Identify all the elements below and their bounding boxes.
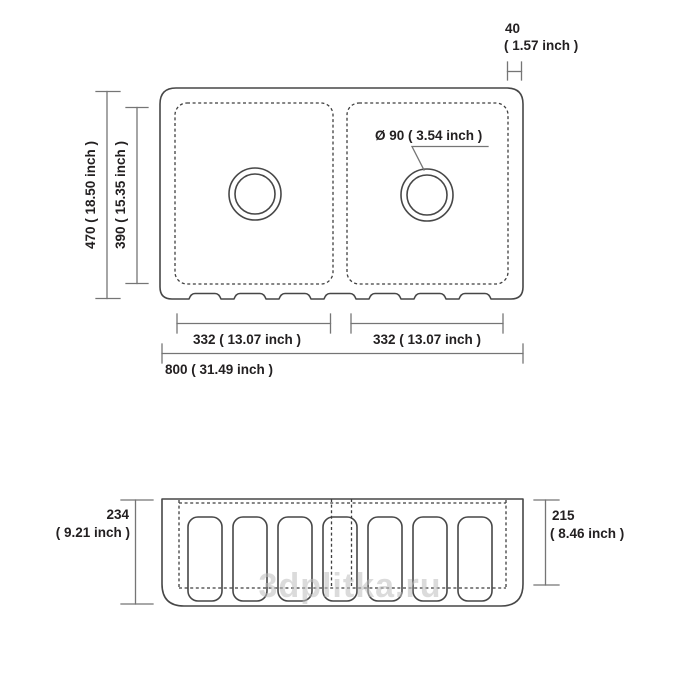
dim-215-mm-label: 215 xyxy=(552,508,575,523)
right-drain-inner-circle xyxy=(407,175,447,215)
dim-rim-gap-inch-label: ( 1.57 inch ) xyxy=(504,38,578,53)
dim-234-inch-label: ( 9.21 inch ) xyxy=(56,525,130,540)
left-bowl-dashed xyxy=(175,103,333,284)
left-drain-inner-circle xyxy=(235,174,275,214)
dim-rim-gap-mm-label: 40 xyxy=(505,21,520,36)
top-view-outline xyxy=(160,88,523,299)
dim-390-label: 390 ( 15.35 inch ) xyxy=(113,141,128,249)
dimension-labels-group: 40 ( 1.57 inch ) 470 ( 18.50 inch ) 390 … xyxy=(56,21,625,541)
drain-leader-line xyxy=(412,147,488,171)
sink-dimension-diagram: 3dplitka.ru 40 ( 1.57 inch ) 470 ( 18.50… xyxy=(0,0,700,700)
dim-234-mm-label: 234 xyxy=(106,507,129,522)
dim-470-label: 470 ( 18.50 inch ) xyxy=(83,141,98,249)
watermark-text: 3dplitka.ru xyxy=(259,567,442,605)
diagram-svg: 3dplitka.ru 40 ( 1.57 inch ) 470 ( 18.50… xyxy=(0,0,700,700)
outline-group xyxy=(160,88,523,606)
dimension-group xyxy=(96,62,559,604)
dim-215-inch-label: ( 8.46 inch ) xyxy=(550,526,624,541)
right-drain-outer-circle xyxy=(401,169,453,221)
left-drain-outer-circle xyxy=(229,168,281,220)
dim-332-right-label: 332 ( 13.07 inch ) xyxy=(373,332,481,347)
drain-diameter-label: Ø 90 ( 3.54 inch ) xyxy=(375,128,482,143)
dim-800-label: 800 ( 31.49 inch ) xyxy=(165,362,273,377)
dim-332-left-label: 332 ( 13.07 inch ) xyxy=(193,332,301,347)
flute-7 xyxy=(458,517,492,601)
